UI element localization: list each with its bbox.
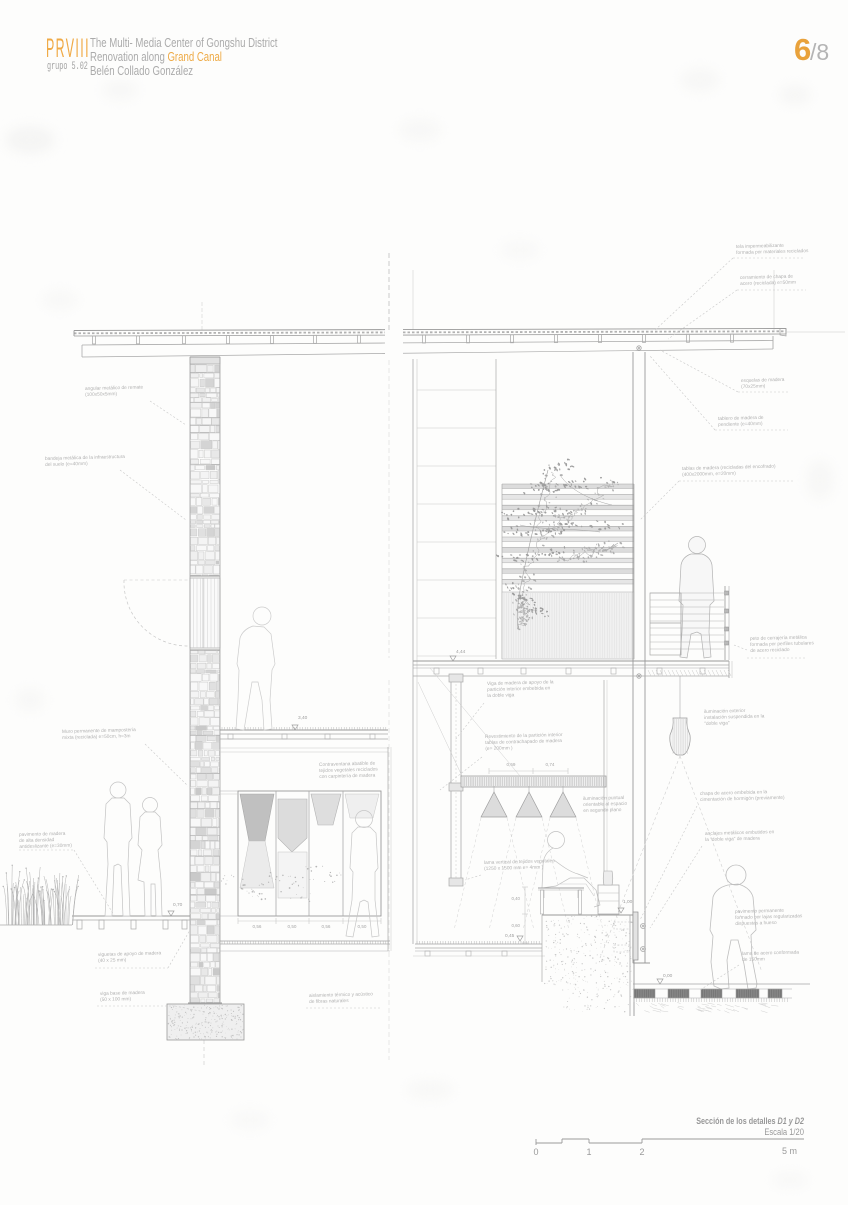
svg-text:Renovation along Grand Canal: Renovation along Grand Canal bbox=[90, 51, 222, 65]
svg-text:de fibras naturales: de fibras naturales bbox=[309, 998, 349, 1005]
svg-text:0,56: 0,56 bbox=[322, 924, 331, 929]
svg-text:(e= 200mm ): (e= 200mm ) bbox=[485, 745, 513, 752]
svg-text:pavimento de madera: pavimento de madera bbox=[19, 831, 66, 838]
svg-text:/8: /8 bbox=[810, 39, 829, 65]
svg-text:0,60: 0,60 bbox=[511, 923, 520, 928]
svg-text:esquelas de madera: esquelas de madera bbox=[741, 377, 785, 384]
svg-text:0,40: 0,40 bbox=[511, 896, 520, 901]
svg-text:0,50: 0,50 bbox=[358, 924, 367, 929]
svg-text:tablero de madera de: tablero de madera de bbox=[718, 415, 764, 422]
svg-text:0,00: 0,00 bbox=[663, 973, 673, 979]
svg-text:iluminación exterior: iluminación exterior bbox=[704, 708, 746, 715]
svg-text:1: 1 bbox=[586, 1147, 591, 1157]
svg-text:The Multi- Media Center of Gon: The Multi- Media Center of Gongshu Distr… bbox=[90, 37, 278, 51]
svg-text:Belén Collado González: Belén Collado González bbox=[90, 65, 193, 79]
svg-text:0,50: 0,50 bbox=[288, 924, 297, 929]
svg-text:3,40: 3,40 bbox=[298, 715, 308, 721]
svg-text:0: 0 bbox=[533, 1147, 538, 1157]
svg-text:6: 6 bbox=[794, 32, 811, 67]
svg-text:iluminación puntual: iluminación puntual bbox=[583, 795, 624, 802]
svg-text:1,00: 1,00 bbox=[623, 899, 633, 905]
svg-text:(40 x 25 mm): (40 x 25 mm) bbox=[98, 957, 127, 964]
svg-text:del suelo (e=40mm): del suelo (e=40mm) bbox=[45, 461, 88, 468]
svg-text:(100x50x5mm): (100x50x5mm) bbox=[85, 391, 118, 398]
svg-text:Escala 1/20: Escala 1/20 bbox=[764, 1126, 804, 1137]
svg-text:la doble viga: la doble viga bbox=[487, 692, 514, 699]
svg-text:(70x25mm): (70x25mm) bbox=[741, 383, 766, 390]
svg-text:de alta densidad: de alta densidad bbox=[19, 837, 55, 844]
svg-text:"doble viga": "doble viga" bbox=[704, 720, 730, 727]
svg-text:grupo 5.02: grupo 5.02 bbox=[47, 59, 88, 72]
svg-text:0,74: 0,74 bbox=[546, 762, 555, 767]
svg-text:de 150mm: de 150mm bbox=[742, 956, 765, 963]
svg-text:pendiente (e=40mm): pendiente (e=40mm) bbox=[718, 421, 763, 428]
svg-text:(50 x 100 mm): (50 x 100 mm) bbox=[100, 996, 131, 1003]
svg-text:5 m: 5 m bbox=[782, 1146, 797, 1156]
svg-text:dispuestas a hueso: dispuestas a hueso bbox=[735, 920, 777, 927]
svg-text:viga base de madera: viga base de madera bbox=[100, 990, 145, 997]
svg-text:de acero reciclado: de acero reciclado bbox=[750, 647, 790, 654]
svg-text:0,45: 0,45 bbox=[505, 933, 515, 939]
svg-text:0,59: 0,59 bbox=[507, 762, 516, 767]
svg-text:2: 2 bbox=[639, 1147, 644, 1157]
svg-text:orientable al espacio: orientable al espacio bbox=[583, 801, 627, 808]
svg-text:4,44: 4,44 bbox=[456, 649, 466, 655]
svg-text:Sección de los detalles D1 y D: Sección de los detalles D1 y D2 bbox=[696, 1115, 804, 1126]
svg-text:0,56: 0,56 bbox=[253, 924, 262, 929]
svg-text:en segundo plano: en segundo plano bbox=[583, 807, 622, 814]
svg-text:0,70: 0,70 bbox=[173, 902, 183, 908]
